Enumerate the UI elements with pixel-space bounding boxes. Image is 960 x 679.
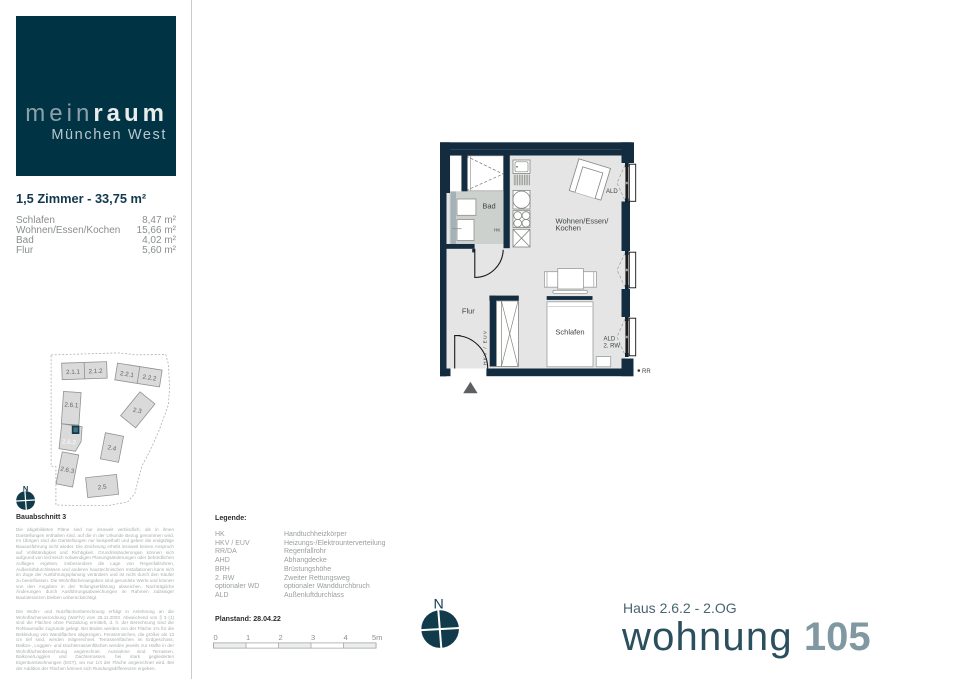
svg-text:4: 4 xyxy=(344,633,348,642)
svg-text:2.5: 2.5 xyxy=(98,484,108,492)
svg-text:3: 3 xyxy=(311,633,315,642)
svg-text:2.1.2: 2.1.2 xyxy=(88,368,103,376)
svg-text:RR: RR xyxy=(642,369,651,375)
svg-text:Kochen: Kochen xyxy=(556,224,581,233)
svg-text:ALD: ALD xyxy=(604,337,616,343)
svg-text:Bad: Bad xyxy=(482,202,495,211)
svg-text:0: 0 xyxy=(214,633,218,642)
svg-text:2. RW: 2. RW xyxy=(604,344,621,350)
svg-text:Schlafen: Schlafen xyxy=(555,328,584,337)
svg-text:Flur: Flur xyxy=(462,307,475,316)
svg-text:HKV / EUV: HKV / EUV xyxy=(482,330,488,365)
svg-text:HK: HK xyxy=(494,228,501,233)
svg-text:2.6.2: 2.6.2 xyxy=(62,438,77,446)
svg-text:1: 1 xyxy=(246,633,250,642)
svg-text:2: 2 xyxy=(279,633,283,642)
svg-text:ALD: ALD xyxy=(606,189,618,195)
svg-text:2.1.1: 2.1.1 xyxy=(66,369,81,377)
svg-text:2.6.1: 2.6.1 xyxy=(64,402,79,410)
svg-text:5m: 5m xyxy=(372,633,382,642)
